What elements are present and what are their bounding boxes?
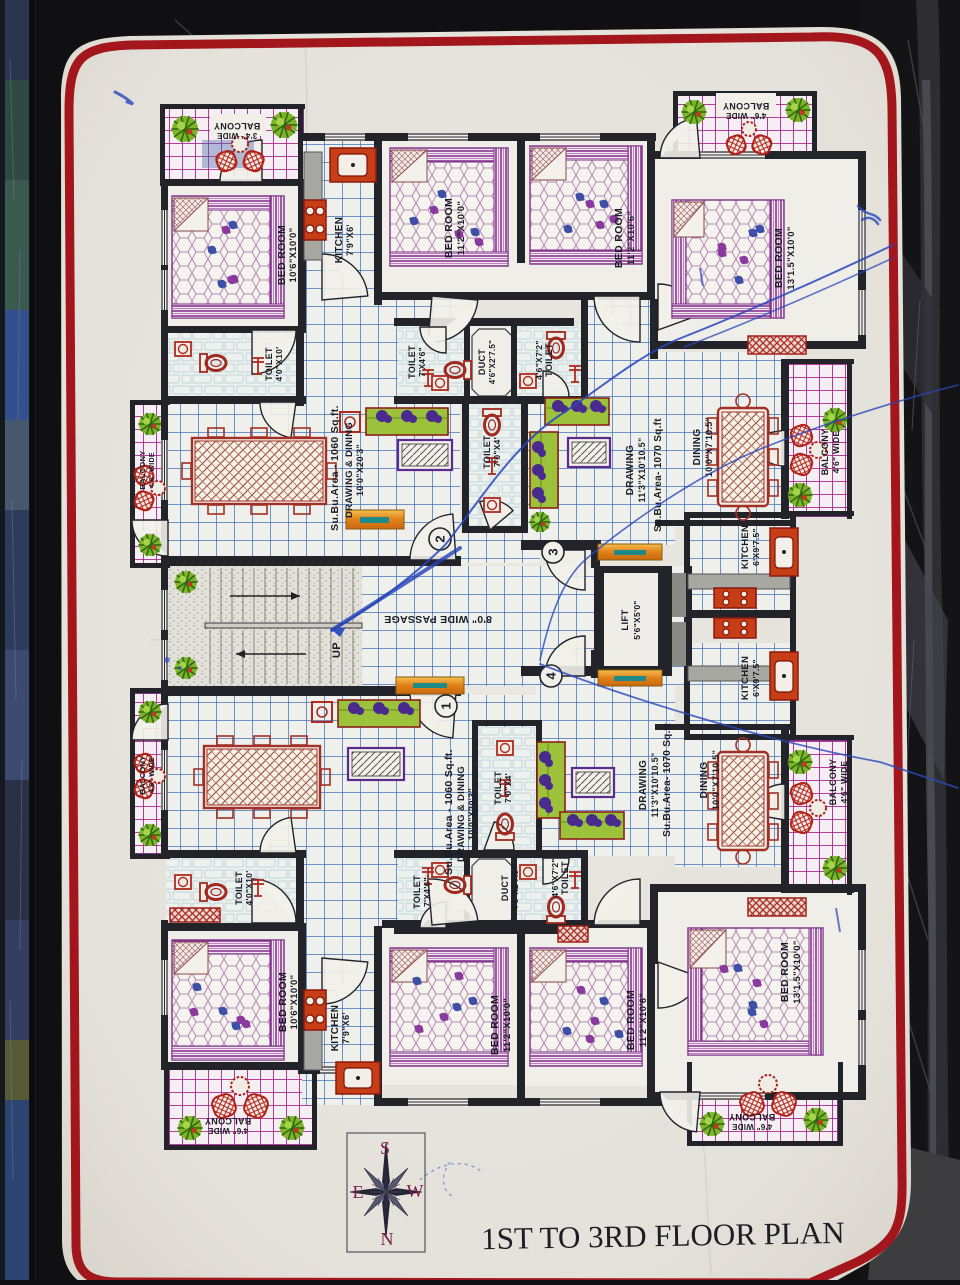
- svg-text:4'6" WIDE: 4'6" WIDE: [207, 1126, 248, 1135]
- svg-text:KITCHEN: KITCHEN: [740, 525, 751, 569]
- svg-text:DINING: DINING: [699, 762, 710, 799]
- svg-text:UP: UP: [331, 642, 343, 658]
- svg-text:DUCT: DUCT: [500, 875, 510, 901]
- svg-text:4'6"X2'7.5": 4'6"X2'7.5": [488, 340, 497, 385]
- svg-text:BED ROOM: BED ROOM: [443, 198, 455, 258]
- svg-text:DINING: DINING: [692, 429, 703, 466]
- svg-text:1: 1: [439, 702, 454, 709]
- svg-text:4'0"X10': 4'0"X10': [244, 870, 254, 905]
- svg-text:4: 4: [544, 672, 559, 680]
- svg-text:DRAWING & DINING: DRAWING & DINING: [344, 422, 355, 518]
- svg-text:LIFT: LIFT: [620, 609, 631, 630]
- svg-text:10'0"X20'3": 10'0"X20'3": [467, 788, 477, 840]
- svg-text:KITCHEN: KITCHEN: [740, 656, 751, 700]
- svg-text:11'3"X10'10.5": 11'3"X10'10.5": [650, 752, 660, 817]
- svg-text:TOILET: TOILET: [493, 771, 503, 805]
- svg-text:TOILET: TOILET: [264, 347, 274, 381]
- svg-text:4'6" WIDE: 4'6" WIDE: [149, 452, 156, 488]
- svg-text:11'2"X10'0": 11'2"X10'0": [502, 998, 513, 1052]
- svg-text:6'X9'7.5": 6'X9'7.5": [751, 659, 761, 697]
- svg-text:S: S: [380, 1138, 390, 1158]
- svg-text:4'0"X10': 4'0"X10': [274, 346, 284, 381]
- svg-text:11'2"X10'0": 11'2"X10'0": [456, 201, 467, 255]
- svg-text:BED ROOM: BED ROOM: [625, 990, 637, 1050]
- svg-text:10'0"X7'10.5": 10'0"X7'10.5": [704, 417, 714, 477]
- svg-text:10'0"X20'3": 10'0"X20'3": [355, 444, 365, 496]
- svg-text:BED ROOM: BED ROOM: [276, 225, 288, 285]
- svg-text:7'X4'6": 7'X4'6": [417, 347, 427, 377]
- svg-text:TOILET: TOILET: [544, 343, 554, 377]
- svg-text:TOILET: TOILET: [482, 435, 492, 469]
- svg-text:3: 3: [546, 548, 561, 555]
- svg-text:7'9"X6': 7'9"X6': [345, 224, 355, 256]
- svg-text:4'6" WIDE: 4'6" WIDE: [831, 431, 841, 474]
- svg-text:10'6"X10'0": 10'6"X10'0": [289, 975, 300, 1030]
- svg-text:4'6"X7'2": 4'6"X7'2": [534, 340, 544, 379]
- svg-text:TOILET: TOILET: [560, 861, 570, 895]
- svg-text:DRAWING: DRAWING: [638, 760, 649, 810]
- svg-text:N: N: [381, 1229, 394, 1249]
- svg-text:7'X4'6": 7'X4'6": [422, 877, 432, 907]
- svg-text:BED ROOM: BED ROOM: [277, 972, 289, 1032]
- svg-text:TOILET: TOILET: [407, 345, 417, 379]
- svg-text:2: 2: [433, 535, 448, 542]
- svg-text:13'1.5"X10'0": 13'1.5"X10'0": [786, 226, 797, 289]
- svg-text:BED ROOM: BED ROOM: [773, 228, 785, 288]
- svg-text:BALCONY: BALCONY: [820, 429, 830, 476]
- svg-text:BED ROOM: BED ROOM: [613, 208, 625, 268]
- svg-text:Su.Bu.Area - 1060 Sq.ft.: Su.Bu.Area - 1060 Sq.ft.: [443, 749, 455, 875]
- svg-text:DRAWING & DINING: DRAWING & DINING: [456, 766, 467, 862]
- svg-text:4'6" WIDE: 4'6" WIDE: [731, 1122, 772, 1131]
- svg-text:10'6"X10'0": 10'6"X10'0": [288, 228, 299, 283]
- svg-text:Su.Bu.Area- 1070 Sq.ft: Su.Bu.Area- 1070 Sq.ft: [653, 418, 664, 532]
- svg-text:4'6" WIDE: 4'6" WIDE: [149, 757, 156, 793]
- svg-text:BALCONY: BALCONY: [729, 1112, 776, 1122]
- svg-text:KITCHEN: KITCHEN: [334, 217, 345, 264]
- svg-text:BALCONY: BALCONY: [138, 755, 147, 794]
- svg-text:6'X9'7.5": 6'X9'7.5": [751, 528, 761, 566]
- svg-text:BALCONY: BALCONY: [723, 101, 770, 111]
- svg-text:Su.Bu.Area- 1070 Sq.ft: Su.Bu.Area- 1070 Sq.ft: [662, 723, 673, 837]
- svg-text:DUCT: DUCT: [477, 349, 487, 375]
- svg-text:4'6" WIDE: 4'6" WIDE: [725, 111, 766, 120]
- svg-text:7'9"X6': 7'9"X6': [341, 1012, 351, 1044]
- svg-text:KITCHEN: KITCHEN: [330, 1005, 341, 1052]
- svg-text:DRAWING: DRAWING: [625, 445, 636, 495]
- svg-text:4'6" WIDE: 4'6" WIDE: [839, 761, 849, 804]
- svg-text:13'1.5"X10'0": 13'1.5"X10'0": [792, 940, 803, 1003]
- svg-text:11'3"X10'10.5": 11'3"X10'10.5": [637, 437, 647, 502]
- svg-text:BALCONY: BALCONY: [205, 1116, 252, 1126]
- svg-text:1ST TO 3RD FLOOR PLAN: 1ST TO 3RD FLOOR PLAN: [481, 1215, 845, 1256]
- svg-text:TOILET: TOILET: [412, 875, 422, 909]
- svg-text:W: W: [407, 1181, 424, 1201]
- svg-text:BED ROOM: BED ROOM: [489, 995, 501, 1055]
- svg-text:7'0"X4': 7'0"X4': [503, 773, 513, 803]
- svg-text:3'4" WIDE: 3'4" WIDE: [216, 131, 257, 140]
- svg-text:BED ROOM: BED ROOM: [779, 942, 791, 1002]
- svg-text:11'2"X10'6": 11'2"X10'6": [626, 211, 637, 265]
- svg-text:BALCONY: BALCONY: [828, 759, 838, 806]
- svg-text:TOILET: TOILET: [234, 871, 244, 905]
- svg-text:E: E: [353, 1182, 364, 1202]
- svg-text:BALCONY: BALCONY: [138, 450, 147, 489]
- svg-text:5'6"X5'0": 5'6"X5'0": [632, 600, 642, 639]
- svg-text:7'0"X4': 7'0"X4': [492, 437, 502, 467]
- svg-text:11'2"X10'6": 11'2"X10'6": [638, 993, 649, 1047]
- svg-text:BALCONY: BALCONY: [214, 121, 261, 131]
- svg-text:4'6"X2'7.5": 4'6"X2'7.5": [511, 866, 520, 911]
- svg-text:4'6"X7'2": 4'6"X7'2": [550, 858, 560, 897]
- svg-text:8'0" WIDE PASSAGE: 8'0" WIDE PASSAGE: [384, 613, 492, 625]
- svg-text:10'0"X7'10.5": 10'0"X7'10.5": [711, 750, 721, 810]
- svg-text:Su.Bu.Area - 1060 Sq.ft.: Su.Bu.Area - 1060 Sq.ft.: [329, 405, 341, 531]
